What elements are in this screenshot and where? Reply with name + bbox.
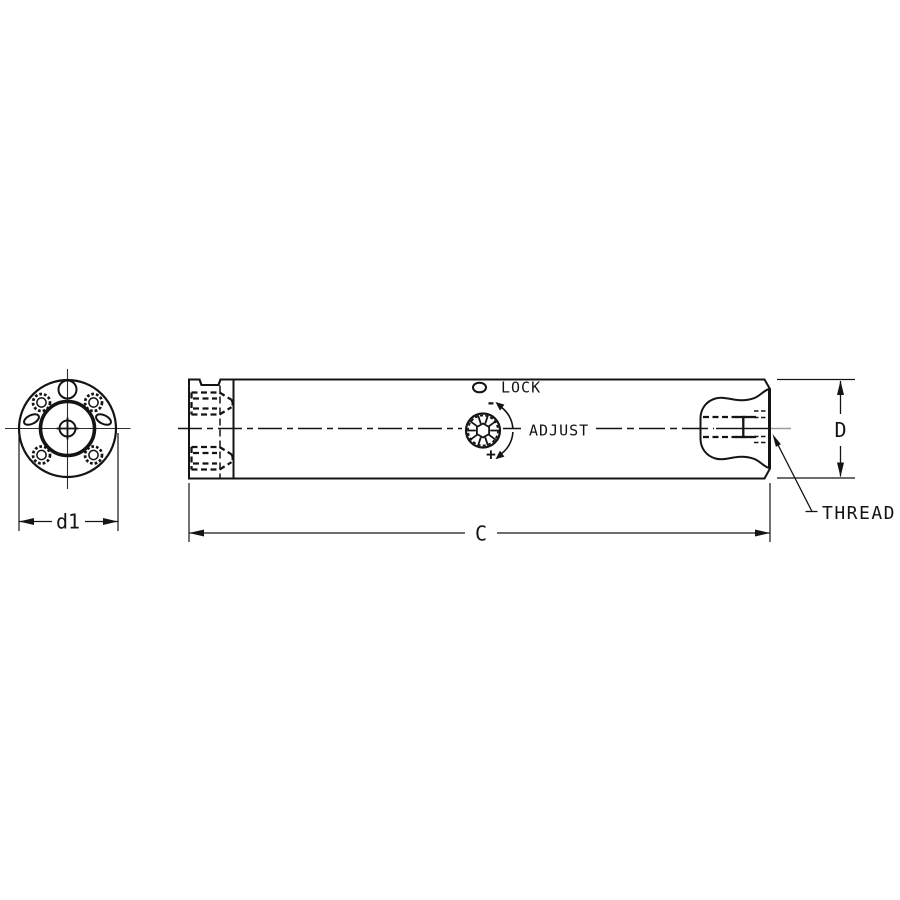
hidden-set-screw-upper xyxy=(192,393,233,415)
screw-socket xyxy=(89,398,98,407)
technical-drawing-canvas: LOCK - + ADJUST xyxy=(0,0,900,900)
screw-serration xyxy=(85,394,102,411)
front-view xyxy=(5,369,131,489)
screw-socket xyxy=(37,398,46,407)
side-view: LOCK - + ADJUST xyxy=(178,379,791,479)
plus-sign: + xyxy=(486,445,496,464)
thread-label: THREAD xyxy=(822,503,896,524)
pocket-screw-section xyxy=(735,417,752,437)
C-label: C xyxy=(475,522,487,546)
minus-arc xyxy=(500,406,513,429)
right-drive-lug xyxy=(94,412,112,427)
center-bore xyxy=(57,418,79,440)
D-label: D xyxy=(834,418,846,442)
screw-body xyxy=(192,393,220,415)
screw-socket xyxy=(37,450,46,459)
mounting-screw-top-left xyxy=(33,394,50,411)
plus-arc xyxy=(500,432,513,455)
screw-tip xyxy=(220,447,233,470)
thread-leader xyxy=(774,437,812,512)
screw-socket xyxy=(89,450,98,459)
minus-sign: - xyxy=(486,393,496,412)
screw-body xyxy=(192,447,220,470)
thread-lines xyxy=(754,411,769,443)
screw-tip xyxy=(220,393,233,415)
adjust-knob xyxy=(466,414,500,448)
dimension-C: C xyxy=(189,483,770,546)
thread-arrowhead xyxy=(773,434,781,447)
lock-hole xyxy=(473,383,486,393)
screw-thread-lines xyxy=(193,399,217,409)
D-arrow-top xyxy=(837,381,844,396)
adjust-label: ADJUST xyxy=(529,422,589,440)
mounting-screw-top-right xyxy=(85,394,102,411)
left-drive-lug xyxy=(22,412,40,427)
knob-hex-socket xyxy=(477,424,489,438)
screw-serration xyxy=(33,394,50,411)
C-arrow-right xyxy=(755,530,770,537)
d1-label: d1 xyxy=(56,510,80,534)
lock-label: LOCK xyxy=(501,379,541,397)
thread-callout: THREAD xyxy=(773,434,897,524)
hidden-set-screw-lower xyxy=(192,447,233,470)
mounting-screw-bottom-right xyxy=(85,447,102,464)
thread-pocket xyxy=(701,389,771,469)
boring-bar-drawing: LOCK - + ADJUST xyxy=(0,0,900,900)
C-arrow-left xyxy=(189,530,204,537)
pocket-hidden-lines xyxy=(703,417,756,437)
dimension-d1: d1 xyxy=(19,433,118,534)
screw-thread-lines xyxy=(193,453,217,464)
dimensions: d1 C D THREAD xyxy=(19,380,896,546)
center-cross xyxy=(57,418,79,440)
d1-arrow-left xyxy=(19,518,34,525)
D-arrow-bottom xyxy=(837,463,844,478)
d1-arrow-right xyxy=(103,518,118,525)
screw-serration xyxy=(85,447,102,464)
